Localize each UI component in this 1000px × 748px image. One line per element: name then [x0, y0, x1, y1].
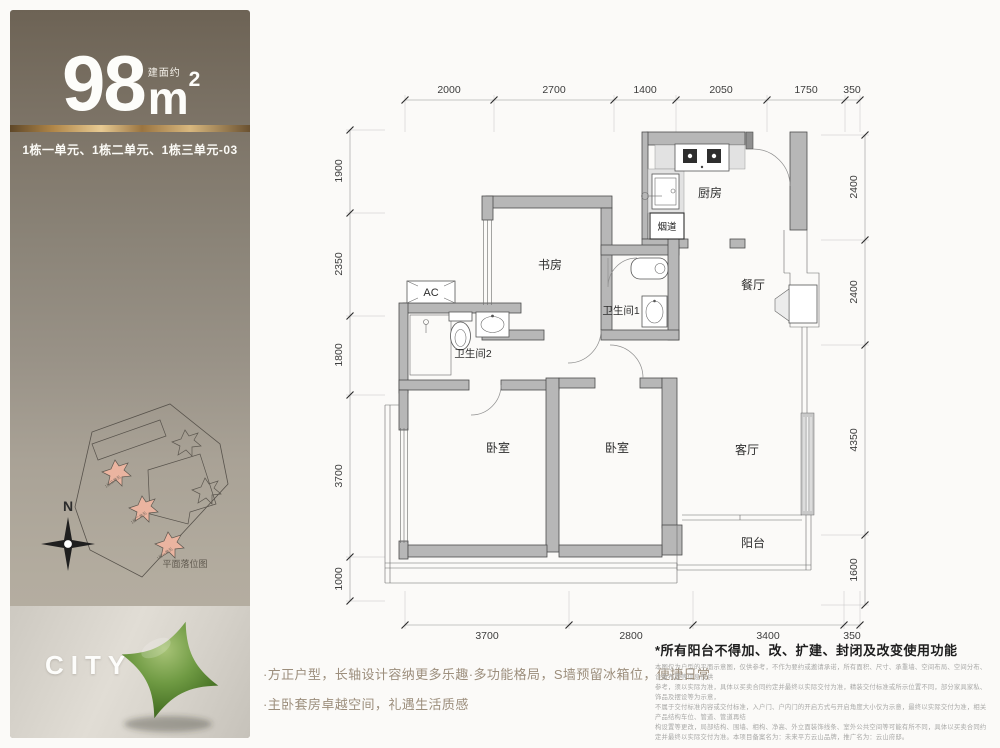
- bath2-door-arc: [471, 385, 501, 415]
- entry-door-arc: [753, 149, 790, 186]
- disclaimer-line-2: 参考，须以实际为准，具体以买卖合同约定并最终以实际交付为准，精装交付标准或所示位…: [655, 683, 987, 703]
- kitchen-label: 厨房: [698, 185, 722, 200]
- site-towers: [102, 430, 221, 558]
- shower-area: [410, 315, 451, 375]
- dim-left-3: 3700: [333, 464, 345, 488]
- bedroom2-label: 卧室: [605, 440, 629, 455]
- dim-left-4: 1000: [333, 567, 345, 591]
- disclaimer-line-4: 构设置等更改，局部结构、围墙、相构、净高、外立面装饰线条、室外公共空间等可能有所…: [655, 723, 987, 743]
- bedroom2-door-arc: [610, 345, 643, 378]
- dim-bottom-0: 3700: [475, 630, 499, 642]
- bedroom1-label: 卧室: [486, 440, 510, 455]
- feature-line-1: ·方正户型，长轴设计容纳更多乐趣·多功能格局，S墙预留冰箱位，便捷日常: [263, 660, 710, 690]
- stove-icon: [675, 144, 729, 171]
- site-plan-map: 1栋三单元 1栋二单元 1栋一单元 N 平面落位图: [20, 392, 240, 607]
- feature-bullets: ·方正户型，长轴设计容纳更多乐趣·多功能格局，S墙预留冰箱位，便捷日常 ·主卧套…: [263, 660, 710, 720]
- bath1-sink-icon: [642, 296, 667, 327]
- dim-top-4: 1750: [794, 84, 818, 96]
- dim-top-0: 2000: [437, 84, 461, 96]
- bedroom1-window: [401, 428, 408, 543]
- dim-right-3: 1600: [848, 558, 860, 582]
- feature-line-2: ·主卧套房卓越空间，礼遇生活质感: [263, 690, 710, 720]
- gold-divider: [10, 125, 250, 132]
- dim-top-1: 2700: [542, 84, 566, 96]
- dining-label: 餐厅: [741, 277, 765, 292]
- site-boundary: [75, 404, 228, 577]
- floor-plan: 2000 2700 1400 2050 1750 350 1900 2350 1…: [325, 75, 885, 655]
- dim-top-5: 350: [843, 84, 861, 96]
- dim-right-2: 4350: [848, 428, 860, 452]
- flue-box: 烟道: [650, 213, 684, 239]
- area-value: 98: [62, 50, 145, 117]
- green-x-sculpture: [96, 606, 246, 738]
- ac-label: AC: [423, 287, 438, 299]
- disclaimer-line-3: 不属于交付标准内容或交付标准，入户门、户内门的开启方式与开启角度大小仅为示意，最…: [655, 703, 987, 723]
- disclaimer-line-1: 本图仅为户型的平面示意图，仅供参考，不作为要约或邀请承诺，所有面积、尺寸、承重墙…: [655, 663, 987, 683]
- sidebar-panel: 98 建面约 m 2 1栋一单元、1栋二单元、1栋三单元-03 1栋三单元 1栋…: [10, 10, 250, 738]
- area-superscript: 2: [189, 68, 201, 92]
- disclaimer-title: *所有阳台不得加、改、扩建、封闭及改变使用功能: [655, 640, 958, 659]
- dim-left-1: 2350: [333, 252, 345, 276]
- disclaimer-body: 本图仅为户型的平面示意图，仅供参考，不作为要约或邀请承诺，所有面积、尺寸、承重墙…: [655, 663, 987, 744]
- toilet-icon: [449, 312, 472, 350]
- kitchen-sink-icon: [652, 174, 679, 209]
- unit-line: 1栋一单元、1栋二单元、1栋三单元-03: [10, 141, 250, 158]
- dimension-labels: 2000 2700 1400 2050 1750 350 1900 2350 1…: [333, 84, 861, 642]
- compass-icon: N: [41, 498, 95, 571]
- study-label: 书房: [538, 257, 562, 272]
- fridge-icon: [775, 285, 817, 323]
- living-label: 客厅: [735, 442, 759, 457]
- bath2-sink-icon: [476, 312, 509, 337]
- dim-right-1: 2400: [848, 280, 860, 304]
- area-unit: m: [148, 80, 189, 117]
- site-plan-caption: 平面落位图: [162, 558, 207, 569]
- bath1-label: 卫生间1: [602, 304, 639, 317]
- brand-photo: CITY X: [10, 606, 250, 738]
- dim-bottom-1: 2800: [619, 630, 643, 642]
- balcony-label: 阳台: [741, 535, 765, 550]
- flue-label: 烟道: [657, 221, 677, 233]
- study-window: [484, 220, 492, 305]
- dim-top-3: 2050: [709, 84, 733, 96]
- compass-north-label: N: [63, 498, 73, 514]
- entry-door-leaf: [746, 132, 753, 149]
- dim-top-2: 1400: [633, 84, 657, 96]
- bathtub-icon: [631, 258, 668, 279]
- dim-right-0: 2400: [848, 175, 860, 199]
- dim-left-2: 1800: [333, 343, 345, 367]
- dim-left-0: 1900: [333, 159, 345, 183]
- ac-unit: AC: [407, 281, 455, 303]
- study-door-arc: [568, 330, 601, 363]
- bath2-label: 卫生间2: [454, 347, 491, 360]
- area-display: 98 建面约 m 2: [62, 50, 200, 117]
